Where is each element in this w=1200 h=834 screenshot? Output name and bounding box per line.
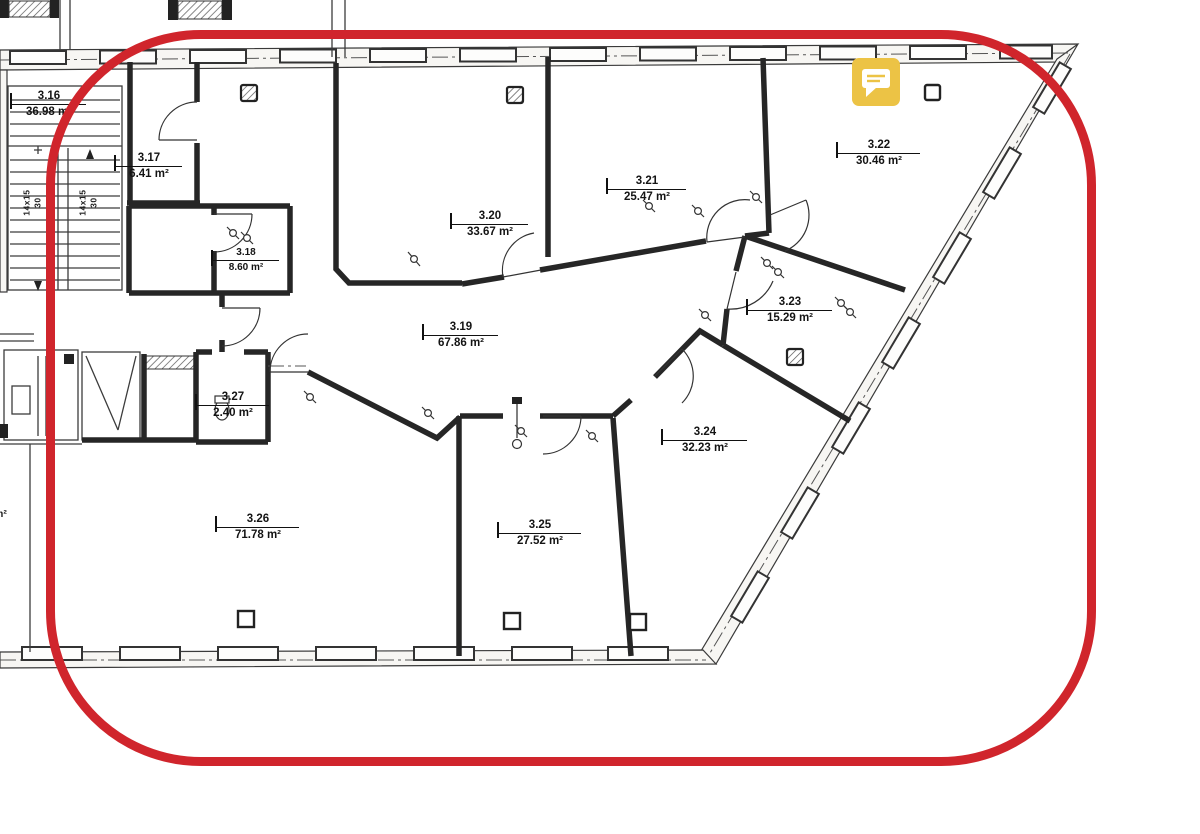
stair-flight-label-1: 14x1530 <box>21 179 42 227</box>
room-label-3-20: 3.2033.67 m² <box>452 210 528 239</box>
room-label-3-21: 3.2125.47 m² <box>608 175 686 204</box>
comment-icon[interactable] <box>852 58 900 106</box>
column-symbols <box>238 85 940 630</box>
windows <box>10 46 1071 661</box>
speech-bubble-icon <box>852 58 900 106</box>
room-label-3-25: 3.2527.52 m² <box>499 519 581 548</box>
interior-walls <box>82 57 905 656</box>
room-label-3-17: 3.176.41 m² <box>116 152 182 181</box>
room-label-3-23: 3.2315.29 m² <box>748 296 832 325</box>
room-label-3-19: 3.1967.86 m² <box>424 321 498 350</box>
floorplan-page: 3.1636.98 m² 3.176.41 m² 3.188.60 m² 3.1… <box>0 0 1200 834</box>
room-label-3-16: 3.1636.98 m² <box>12 90 86 119</box>
room-label-3-22: 3.2230.46 m² <box>838 139 920 168</box>
room-label-3-18: 3.188.60 m² <box>213 247 279 273</box>
stair-flight-label-2: 14x1530 <box>77 179 98 227</box>
elevator-shafts <box>0 334 195 652</box>
clipped-area-label: m² <box>0 508 7 520</box>
room-label-3-24: 3.2432.23 m² <box>663 426 747 455</box>
room-label-3-26: 3.2671.78 m² <box>217 513 299 542</box>
floorplan-drawing <box>0 0 1200 834</box>
room-label-3-27: 3.272.40 m² <box>197 391 269 420</box>
